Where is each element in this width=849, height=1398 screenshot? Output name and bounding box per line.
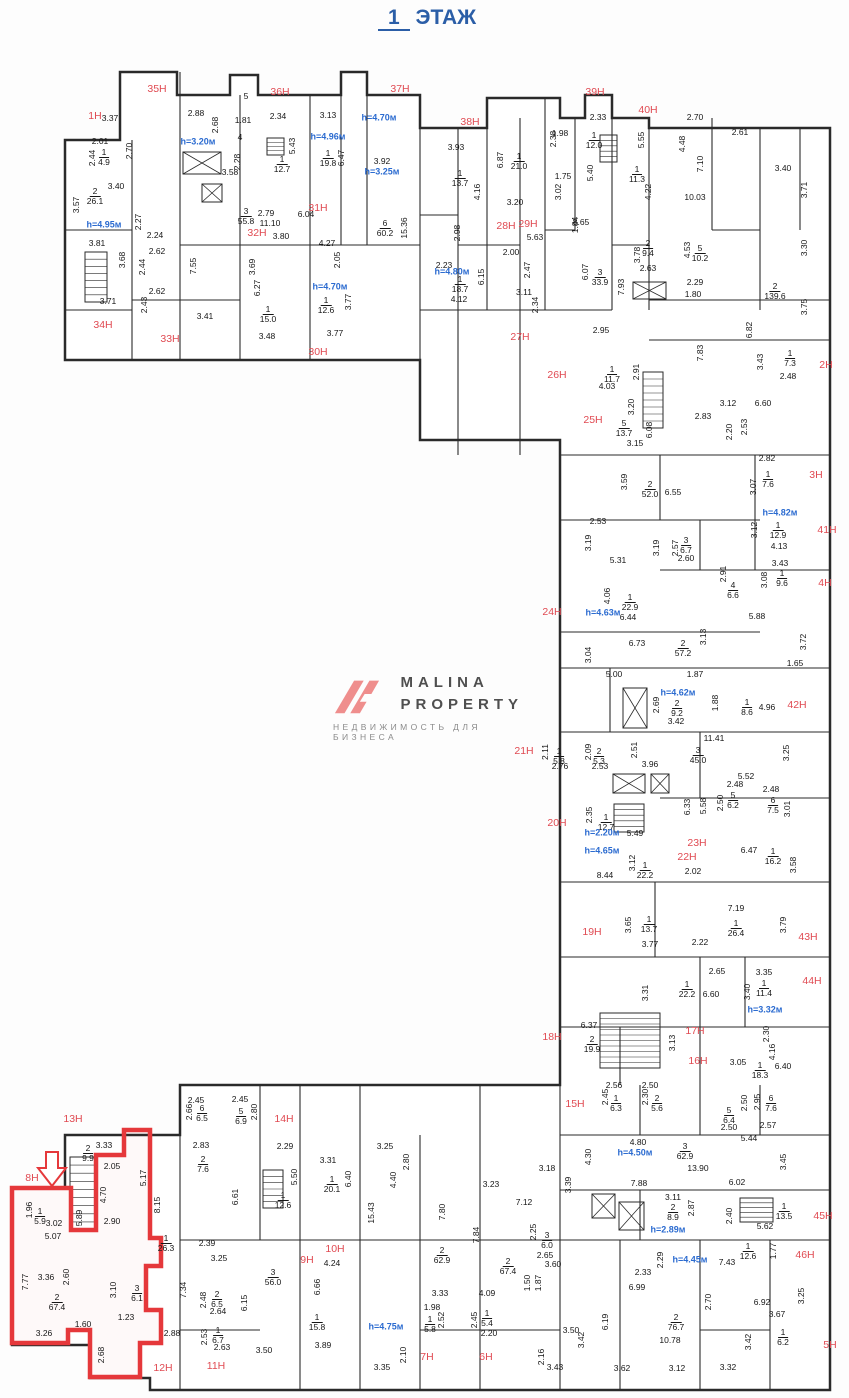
dimension-label: 2.20: [725, 424, 734, 441]
dimension-label: 4.06: [603, 588, 612, 605]
unit-label[interactable]: 22Н: [677, 852, 696, 863]
unit-label[interactable]: 42Н: [787, 700, 806, 711]
dimension-label: 7.93: [617, 279, 626, 296]
dimension-label: 6.66: [313, 1279, 322, 1296]
dimension-label: 3.33: [96, 1141, 113, 1150]
dimension-label: 7.19: [728, 904, 745, 913]
room-area-label: 219.9: [584, 1035, 601, 1053]
unit-label[interactable]: 16Н: [688, 1056, 707, 1067]
dimension-label: 2.39: [199, 1239, 216, 1248]
dimension-label: 1.77: [769, 1243, 778, 1260]
dimension-label: 2.43: [140, 297, 149, 314]
unit-label[interactable]: 18Н: [542, 1032, 561, 1043]
unit-label[interactable]: 29Н: [518, 219, 537, 230]
dimension-label: 2.29: [277, 1142, 294, 1151]
dimension-label: 3.31: [641, 985, 650, 1002]
dimension-label: 11.41: [704, 734, 725, 743]
dimension-label: 3.58: [222, 168, 239, 177]
dimension-label: 6.15: [240, 1295, 249, 1312]
dimension-label: 8.44: [597, 871, 614, 880]
ceiling-height-label: h=4.75м: [369, 1323, 404, 1332]
dimension-label: 4.30: [584, 1149, 593, 1166]
dimension-label: 6.07: [581, 264, 590, 281]
room-area-label: 66.5: [196, 1104, 208, 1122]
dimension-label: 3.69: [248, 259, 257, 276]
dimension-label: 7.43: [719, 1258, 736, 1267]
dimension-label: 2.02: [685, 867, 702, 876]
dimension-label: 3.43: [756, 354, 765, 371]
dimension-label: 15.43: [367, 1202, 376, 1223]
dimension-label: 3.26: [36, 1329, 53, 1338]
unit-label[interactable]: 26Н: [547, 370, 566, 381]
dimension-label: 2.82: [759, 454, 776, 463]
unit-label[interactable]: 8Н: [25, 1173, 38, 1184]
dimension-label: 1.98: [424, 1303, 441, 1312]
dimension-label: 6.92: [754, 1298, 771, 1307]
dimension-label: 5.63: [527, 233, 544, 242]
dimension-label: 4.96: [759, 703, 776, 712]
dimension-label: 4.03: [599, 382, 616, 391]
dimension-label: 8.15: [153, 1197, 162, 1214]
dimension-label: 2.35: [585, 807, 594, 824]
dimension-label: 3.60: [545, 1260, 562, 1269]
room-area-label: 17.6: [762, 470, 774, 488]
dimension-label: 2.48: [199, 1292, 208, 1309]
dimension-label: 2.51: [630, 742, 639, 759]
dimension-label: 2.10: [399, 1347, 408, 1364]
dimension-label: 3.25: [797, 1288, 806, 1305]
dimension-label: 2.25: [529, 1224, 538, 1241]
dimension-label: 7.55: [189, 258, 198, 275]
unit-label[interactable]: 23Н: [687, 838, 706, 849]
dimension-label: 3.50: [563, 1326, 580, 1335]
dimension-label: 2.40: [725, 1208, 734, 1225]
dimension-label: 4.22: [644, 184, 653, 201]
room-area-label: 113.7: [641, 915, 658, 933]
unit-label[interactable]: 41Н: [817, 525, 836, 536]
dimension-label: 3.02: [46, 1219, 63, 1228]
dimension-label: 2.45: [470, 1312, 479, 1329]
dimension-label: 1.96: [25, 1202, 34, 1219]
ceiling-height-label: h=2.89м: [651, 1226, 686, 1235]
ceiling-height-label: h=3.25м: [365, 168, 400, 177]
room-area-label: 14.9: [98, 148, 110, 166]
dimension-label: 3.33: [432, 1289, 449, 1298]
ceiling-height-label: h=4.50м: [618, 1149, 653, 1158]
dimension-label: 3.32: [720, 1363, 737, 1372]
dimension-label: 3.19: [584, 535, 593, 552]
ceiling-height-label: h=3.32м: [748, 1006, 783, 1015]
dimension-label: 3.71: [800, 182, 809, 199]
dimension-label: 2.90: [104, 1217, 121, 1226]
room-area-label: 333.9: [592, 268, 609, 286]
dimension-label: 6.60: [703, 990, 720, 999]
dimension-label: 2.61: [732, 128, 749, 137]
dimension-label: 2.62: [149, 247, 166, 256]
dimension-label: 2.79: [258, 209, 275, 218]
room-area-label: 15.4: [481, 1309, 493, 1327]
dimension-label: 6.44: [620, 613, 637, 622]
dimension-label: 10.78: [659, 1336, 680, 1345]
room-area-label: 25.6: [651, 1094, 663, 1112]
dimension-label: 3.12: [669, 1364, 686, 1373]
unit-label[interactable]: 2Н: [819, 360, 832, 371]
room-area-label: 267.4: [500, 1257, 517, 1275]
dimension-label: 3.10: [109, 1282, 118, 1299]
dimension-label: 6.27: [253, 280, 262, 297]
dimension-label: 3.13: [320, 111, 337, 120]
dimension-label: 3.12: [628, 855, 637, 872]
dimension-label: 10.03: [684, 193, 705, 202]
dimension-label: 3.72: [799, 634, 808, 651]
dimension-label: 2.48: [780, 372, 797, 381]
dimension-label: 2.48: [763, 785, 780, 794]
dimension-label: 4: [238, 133, 243, 142]
dimension-label: 2.01: [92, 137, 109, 146]
unit-label[interactable]: 28Н: [496, 221, 515, 232]
room-area-label: 226.1: [87, 187, 104, 205]
unit-label[interactable]: 20Н: [547, 818, 566, 829]
dimension-label: 2.00: [503, 248, 520, 257]
dimension-label: 3.35: [756, 968, 773, 977]
room-area-label: 126.4: [728, 919, 745, 937]
room-area-label: 67.6: [765, 1094, 777, 1112]
unit-label[interactable]: 10Н: [325, 1244, 344, 1255]
dimension-label: 3.25: [782, 745, 791, 762]
dimension-label: 4.53: [683, 242, 692, 259]
dimension-label: 3.62: [614, 1364, 631, 1373]
floorplan-page: 1 ЭТАЖ MALINA PROPERTY НЕДВИЖИМОСТЬ ДЛЯ …: [0, 0, 849, 1398]
dimension-label: 2.69: [652, 697, 661, 714]
unit-label[interactable]: 24Н: [542, 607, 561, 618]
dimension-label: 3.36: [38, 1273, 55, 1282]
dimension-label: 3.20: [627, 399, 636, 416]
dimension-label: 4.48: [678, 136, 687, 153]
dimension-label: 7.84: [472, 1227, 481, 1244]
room-area-label: 267.4: [49, 1293, 66, 1311]
dimension-label: 5.62: [757, 1222, 774, 1231]
room-area-label: 356.0: [265, 1268, 282, 1286]
dimension-label: 3.01: [783, 801, 792, 818]
unit-label[interactable]: 1Н: [88, 111, 101, 122]
unit-label[interactable]: 40Н: [638, 105, 657, 116]
dimension-label: 7.34: [179, 1282, 188, 1299]
dimension-label: 3.77: [642, 940, 659, 949]
unit-label[interactable]: 21Н: [514, 746, 533, 757]
dimension-label: 2.44: [88, 150, 97, 167]
dimension-label: 3.81: [89, 239, 106, 248]
dimension-label: 2.05: [333, 252, 342, 269]
dimension-label: 7.77: [21, 1274, 30, 1291]
room-area-label: 112.6: [318, 296, 335, 314]
dimension-label: 2.20: [481, 1329, 498, 1338]
dimension-label: 2.33: [590, 113, 607, 122]
dimension-label: 2.66: [185, 1104, 194, 1121]
dimension-label: 15.36: [400, 217, 409, 238]
dimension-label: 2.29: [687, 278, 704, 287]
dimension-label: 4.16: [473, 184, 482, 201]
ceiling-height-label: h=4.80м: [435, 268, 470, 277]
dimension-label: 4.70: [99, 1187, 108, 1204]
dimension-label: 2.76: [552, 762, 569, 771]
dimension-label: 3.02: [554, 184, 563, 201]
dimension-label: 5.00: [606, 670, 623, 679]
ceiling-height-label: h=4.62м: [661, 689, 696, 698]
dimension-label: 3.77: [327, 329, 344, 338]
unit-label[interactable]: 44Н: [802, 976, 821, 987]
dimension-label: 5.43: [288, 138, 297, 155]
room-area-label: 112.0: [586, 131, 603, 149]
dimension-label: 5.17: [139, 1170, 148, 1187]
dimension-label: 2.44: [138, 259, 147, 276]
unit-label[interactable]: 12Н: [153, 1363, 172, 1374]
room-area-label: 116.2: [765, 847, 782, 865]
dimension-label: 2.05: [104, 1162, 121, 1171]
unit-label[interactable]: 9Н: [300, 1255, 313, 1266]
dimension-label: 6.15: [477, 269, 486, 286]
ceiling-height-label: h=4.70м: [313, 283, 348, 292]
room-area-label: 56.2: [727, 791, 739, 809]
plan-labels-layer: 2.012.4414.93.40226.13.572.703.372.882.6…: [0, 0, 849, 1398]
unit-label[interactable]: 13Н: [63, 1114, 82, 1125]
dimension-label: 5.50: [290, 1169, 299, 1186]
unit-label[interactable]: 32Н: [247, 228, 266, 239]
room-area-label: 276.7: [668, 1313, 685, 1331]
dimension-label: 2.09: [584, 744, 593, 761]
dimension-label: 2.47: [523, 262, 532, 279]
dimension-label: 3.07: [749, 479, 758, 496]
dimension-label: 1.75: [555, 172, 572, 181]
dimension-label: 6.47: [741, 846, 758, 855]
room-area-label: 121.0: [511, 152, 528, 170]
ceiling-height-label: h=4.96м: [311, 133, 346, 142]
unit-label[interactable]: 15Н: [565, 1099, 584, 1110]
room-area-label: 112.9: [770, 521, 787, 539]
dimension-label: 6.08: [645, 422, 654, 439]
dimension-label: 3.05: [730, 1058, 747, 1067]
dimension-label: 3.30: [800, 240, 809, 257]
unit-label[interactable]: 4Н: [818, 578, 831, 589]
ceiling-height-label: h=4.95м: [87, 221, 122, 230]
dimension-label: 7.80: [438, 1204, 447, 1221]
room-area-label: 36.7: [680, 536, 692, 554]
dimension-label: 2.88: [188, 109, 205, 118]
unit-label[interactable]: 19Н: [582, 927, 601, 938]
dimension-label: 2.95: [753, 1094, 762, 1111]
dimension-label: 3.89: [315, 1341, 332, 1350]
dimension-label: 6.60: [755, 399, 772, 408]
dimension-label: 3.75: [800, 299, 809, 316]
ceiling-height-label: h=4.45м: [673, 1256, 708, 1265]
dimension-label: 3.19: [652, 540, 661, 557]
room-area-label: 56.9: [235, 1107, 247, 1125]
dimension-label: 1.80: [685, 290, 702, 299]
unit-label[interactable]: 37Н: [390, 84, 409, 95]
dimension-label: 1.87: [687, 670, 704, 679]
room-area-label: 17.3: [784, 349, 796, 367]
unit-label[interactable]: 36Н: [270, 87, 289, 98]
dimension-label: 1.50: [523, 1275, 532, 1292]
dimension-label: 3.39: [564, 1177, 573, 1194]
room-area-label: 15.8: [424, 1315, 436, 1333]
dimension-label: 3.15: [627, 439, 644, 448]
unit-label[interactable]: 27Н: [510, 332, 529, 343]
dimension-label: 3.45: [779, 1154, 788, 1171]
room-area-label: 257.2: [675, 639, 692, 657]
room-area-label: 120.1: [324, 1175, 341, 1193]
dimension-label: 2.30: [641, 1089, 650, 1106]
unit-label[interactable]: 14Н: [274, 1114, 293, 1125]
unit-label[interactable]: 38Н: [460, 117, 479, 128]
dimension-label: 2.83: [695, 412, 712, 421]
dimension-label: 4.27: [319, 239, 336, 248]
dimension-label: 2.50: [716, 795, 725, 812]
dimension-label: 2.95: [593, 326, 610, 335]
dimension-label: 4.12: [451, 295, 468, 304]
dimension-label: 6.47: [337, 150, 346, 167]
dimension-label: 2.50: [721, 1123, 738, 1132]
dimension-label: 2.91: [632, 364, 641, 381]
dimension-label: 1.65: [787, 659, 804, 668]
room-area-label: 18.6: [741, 698, 753, 716]
dimension-label: 6.99: [629, 1283, 646, 1292]
dimension-label: 6.55: [665, 488, 682, 497]
dimension-label: 2.24: [147, 231, 164, 240]
dimension-label: 1.23: [118, 1313, 135, 1322]
unit-label[interactable]: 7Н: [420, 1352, 433, 1363]
dimension-label: 5.89: [75, 1210, 84, 1227]
dimension-label: 2.70: [687, 113, 704, 122]
unit-label[interactable]: 17Н: [685, 1026, 704, 1037]
ceiling-height-label: h=2.20м: [585, 829, 620, 838]
dimension-label: 2.45: [601, 1089, 610, 1106]
dimension-label: 2.68: [97, 1347, 106, 1364]
dimension-label: 6.40: [775, 1062, 792, 1071]
unit-label[interactable]: 6Н: [479, 1352, 492, 1363]
room-area-label: 126.3: [158, 1234, 175, 1252]
dimension-label: 2.60: [678, 554, 695, 563]
unit-label[interactable]: 34Н: [93, 320, 112, 331]
room-area-label: 2139.6: [764, 282, 785, 300]
dimension-label: 6.40: [344, 1171, 353, 1188]
dimension-label: 2.27: [134, 214, 143, 231]
dimension-label: 3.12: [720, 399, 737, 408]
dimension-label: 2.98: [453, 225, 462, 242]
dimension-label: 3.50: [256, 1346, 273, 1355]
dimension-label: 3.40: [743, 984, 752, 1001]
dimension-label: 2.34: [270, 112, 287, 121]
dimension-label: 2.60: [62, 1269, 71, 1286]
dimension-label: 3.35: [374, 1363, 391, 1372]
room-area-label: 36.1: [131, 1284, 143, 1302]
dimension-label: 5: [244, 92, 249, 101]
dimension-label: 7.10: [696, 156, 705, 173]
dimension-label: 4.09: [479, 1289, 496, 1298]
dimension-label: 3.57: [72, 197, 81, 214]
unit-label[interactable]: 35Н: [147, 84, 166, 95]
dimension-label: 2.48: [727, 780, 744, 789]
dimension-label: 3.43: [547, 1363, 564, 1372]
room-area-label: 122.9: [622, 593, 639, 611]
unit-label[interactable]: 25Н: [583, 415, 602, 426]
dimension-label: 3.96: [642, 760, 659, 769]
room-area-label: 513.7: [616, 419, 633, 437]
dimension-label: 3.67: [769, 1310, 786, 1319]
room-area-label: 111.4: [756, 979, 772, 997]
dimension-label: 6.82: [745, 322, 754, 339]
dimension-label: 3.65: [624, 917, 633, 934]
dimension-label: 2.91: [719, 566, 728, 583]
dimension-label: 3.93: [448, 143, 465, 152]
room-area-label: 113.7: [452, 169, 469, 187]
dimension-label: 5.58: [699, 798, 708, 815]
dimension-label: 3.58: [789, 857, 798, 874]
room-area-label: 118.7: [452, 275, 469, 293]
dimension-label: 2.65: [709, 967, 726, 976]
dimension-label: 6.33: [683, 799, 692, 816]
dimension-label: 3.12: [750, 522, 759, 539]
dimension-label: 3.11: [665, 1193, 681, 1202]
dimension-label: 3.11: [516, 288, 532, 297]
room-area-label: 27.6: [197, 1155, 209, 1173]
room-area-label: 660.2: [377, 219, 394, 237]
dimension-label: 7.88: [631, 1179, 648, 1188]
ceiling-height-label: h=4.70м: [362, 114, 397, 123]
dimension-label: 2.70: [704, 1294, 713, 1311]
unit-label[interactable]: 11Н: [207, 1361, 225, 1372]
dimension-label: 2.22: [692, 938, 709, 947]
dimension-label: 3.23: [483, 1180, 500, 1189]
dimension-label: 2.68: [211, 117, 220, 134]
room-area-label: 122.2: [637, 861, 654, 879]
dimension-label: 2.63: [640, 264, 657, 273]
dimension-label: 2.63: [214, 1343, 231, 1352]
room-area-label: 113.5: [776, 1202, 793, 1220]
dimension-label: 2.16: [537, 1349, 546, 1366]
room-area-label: 510.2: [692, 244, 709, 262]
unit-label[interactable]: 33Н: [160, 334, 179, 345]
dimension-label: 5.44: [741, 1134, 758, 1143]
unit-label[interactable]: 5Н: [823, 1340, 836, 1351]
dimension-label: 3.08: [760, 572, 769, 589]
dimension-label: 6.87: [496, 152, 505, 169]
unit-label[interactable]: 45Н: [813, 1211, 832, 1222]
dimension-label: 2.70: [125, 143, 134, 160]
dimension-label: 3.77: [344, 294, 353, 311]
dimension-label: 2.53: [740, 419, 749, 436]
dimension-label: 1.87: [534, 1275, 543, 1292]
unit-label[interactable]: 30Н: [308, 347, 327, 358]
dimension-label: 3.20: [507, 198, 524, 207]
ceiling-height-label: h=4.82м: [763, 509, 798, 518]
room-area-label: 345.0: [690, 746, 707, 764]
dimension-label: 3.13: [699, 629, 708, 646]
room-area-label: 15.9: [34, 1207, 46, 1225]
dimension-label: 1.60: [75, 1320, 92, 1329]
dimension-label: 3.40: [108, 182, 125, 191]
dimension-label: 5.88: [749, 612, 766, 621]
unit-label[interactable]: 3Н: [809, 470, 822, 481]
dimension-label: 2.38: [549, 131, 558, 148]
dimension-label: 3.43: [772, 559, 789, 568]
room-area-label: 252.0: [642, 480, 659, 498]
unit-label[interactable]: 46Н: [795, 1250, 814, 1261]
unit-label[interactable]: 43Н: [798, 932, 817, 943]
unit-label[interactable]: 39Н: [585, 87, 604, 98]
dimension-label: 2.80: [402, 1154, 411, 1171]
unit-label[interactable]: 31Н: [308, 203, 327, 214]
dimension-label: 8.65: [573, 218, 590, 227]
